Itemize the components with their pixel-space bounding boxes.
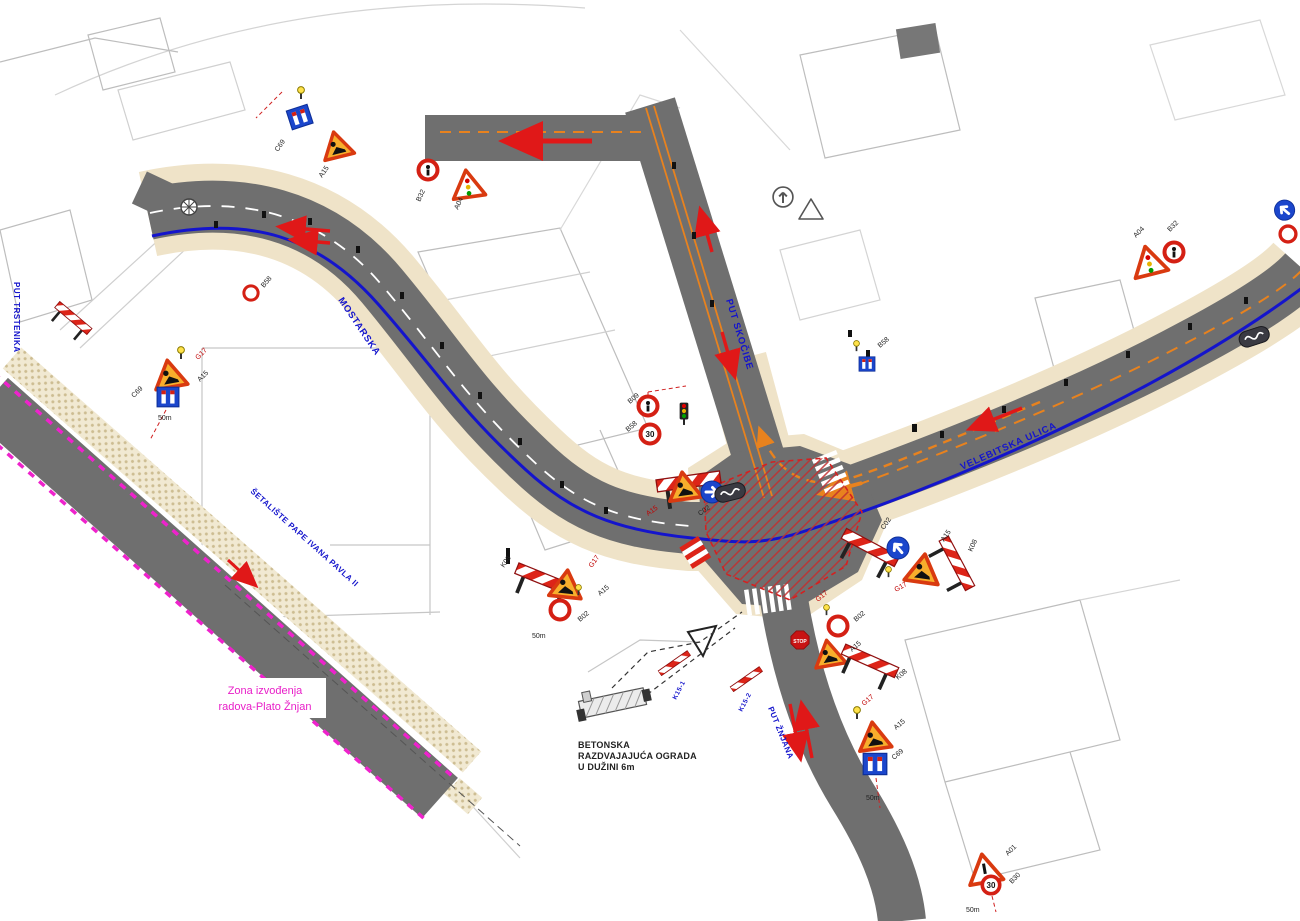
sign-code: G17 (894, 581, 909, 594)
signals-ahead-triangle-icon (450, 168, 486, 199)
pole-code: K15-2 (738, 692, 754, 713)
stop-sign-label: STOP (793, 639, 807, 645)
sign-code: A01 (1004, 844, 1018, 858)
distance-label: 50m (966, 907, 980, 914)
sign-code: C69 (891, 748, 905, 762)
sign-code: A15 (318, 165, 331, 179)
sign-cluster-far-left (47, 302, 92, 344)
sign-code: B02 (853, 610, 867, 623)
road-topright-stub (896, 23, 940, 59)
sign-code: A15 (597, 584, 611, 597)
distance-label: 50m (866, 795, 880, 802)
sign-code: B32 (1166, 220, 1180, 234)
island-pole-icon (730, 667, 763, 692)
detour-sign-icon (863, 753, 887, 774)
prohibition-ring-icon (1280, 226, 1296, 242)
sign-code: B30 (1008, 872, 1022, 886)
distance-label: 50m (158, 415, 172, 422)
flasher-lamp-icon (298, 87, 305, 99)
prohibition-ring-icon (551, 601, 570, 620)
zone-label: Zona izvođenja radova-Plato Žnjan (204, 678, 326, 718)
barrier-board-icon (834, 644, 898, 693)
flasher-lamp-icon (178, 347, 185, 359)
flasher-lamp-icon (824, 605, 830, 616)
sign-code: A04 (1132, 226, 1146, 240)
sign-cluster-topleft: C69 A15 (256, 87, 355, 180)
detour-sign-icon (157, 387, 179, 407)
flasher-lamp-icon (886, 567, 892, 578)
barrier-board-icon (47, 302, 92, 344)
works-triangle-icon (151, 357, 188, 389)
utility-circle-icon (181, 199, 197, 215)
grey-circle-arrow-icon (773, 187, 793, 207)
pole-code: K15-1 (672, 680, 688, 701)
zone-label-line1: Zona izvođenja (228, 685, 303, 697)
island-pole-icon (658, 651, 691, 676)
flasher-lamp-icon (854, 707, 861, 719)
traffic-plan-canvas[interactable]: C69 A15 B32 A04 G17 A15 C69 50m B58 B (0, 0, 1300, 921)
sign-cluster-left: G17 A15 C69 50m (130, 347, 210, 440)
plan-drawing: C69 A15 B32 A04 G17 A15 C69 50m B58 B (0, 0, 1300, 921)
road-east (826, 270, 1300, 500)
barrier-note-line2: RAZDVAJAJUĆA OGRADA (578, 750, 697, 761)
works-triangle-icon (856, 720, 892, 751)
works-triangle-icon (319, 128, 355, 160)
sign-code: B58 (260, 275, 273, 289)
yield-marking (688, 626, 716, 656)
barrier-note-line3: U DUŽINI 6m (578, 761, 635, 772)
road-nw-stub (150, 180, 165, 212)
no-pedestrians-ring-icon (419, 161, 438, 180)
sign-code: C69 (130, 385, 144, 399)
sign-code: K08 (500, 555, 513, 569)
carriageways (148, 23, 1300, 921)
sign-code: B32 (415, 189, 427, 203)
no-pedestrians-ring-icon (1165, 243, 1184, 262)
stop-sign: STOP (791, 631, 809, 649)
sign-cluster-top-signals: B32 A04 (415, 161, 485, 211)
existing-symbols (773, 187, 823, 219)
sign-code: A15 (893, 718, 907, 731)
speed-limit-ring: 30 (641, 425, 660, 444)
distance-label: 50m (532, 633, 546, 640)
no-pedestrians-ring-icon (639, 397, 658, 416)
street-label-left-edge: PUT TRSTENIKA (12, 282, 21, 353)
prohibition-ring-icon (244, 286, 258, 300)
sign-code: G17 (861, 694, 876, 708)
mandatory-arrow-icon (1270, 196, 1298, 224)
barrier-note-line1: BETONSKA (578, 740, 630, 750)
sign-cluster-east-small: B58 (854, 336, 891, 371)
sign-small-scurve: B58 (244, 275, 274, 300)
sign-code: G17 (588, 554, 601, 569)
works-triangle-icon (904, 552, 942, 585)
speed-limit-value: 30 (646, 430, 655, 439)
sign-code: B02 (577, 610, 591, 623)
sign-code: C69 (274, 139, 287, 154)
barrier-note: BETONSKA RAZDVAJAJUĆA OGRADA U DUŽINI 6m (578, 740, 697, 772)
speed-limit-ring: 30 (982, 876, 999, 893)
sign-cluster-topright: A04 B32 (1129, 220, 1184, 279)
sign-cluster-bottomright: 30 A01 B30 50m (965, 844, 1022, 914)
sign-code: K08 (967, 539, 979, 553)
sign-cluster-below-west-road: K08 G17 A15 B02 50m (500, 548, 611, 640)
sign-code: B58 (877, 336, 891, 349)
sign-code: A15 (196, 370, 210, 384)
speed-limit-value: 30 (987, 881, 996, 890)
detour-sign-icon (859, 357, 875, 371)
concrete-barrier-drawing (573, 679, 653, 722)
road-promenade-workzone (0, 358, 520, 846)
zone-label-line2: radova-Plato Žnjan (219, 700, 312, 713)
detour-sign-icon (286, 104, 313, 129)
flasher-lamp-icon (854, 341, 860, 352)
grey-triangle-icon (799, 199, 823, 219)
signals-ahead-triangle-icon (1129, 243, 1169, 279)
prohibition-ring-icon (829, 617, 848, 636)
